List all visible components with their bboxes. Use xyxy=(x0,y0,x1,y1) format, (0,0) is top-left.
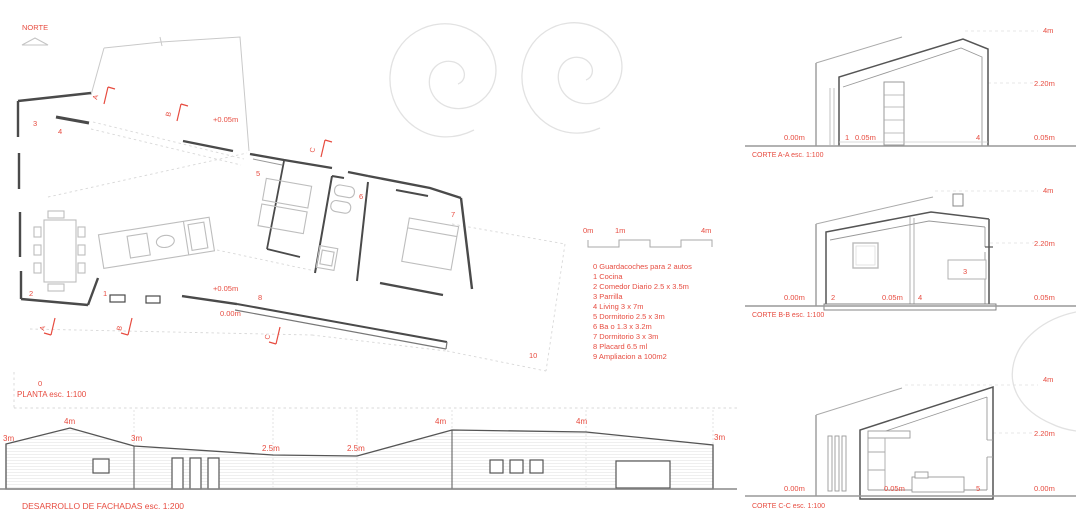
courtyard-outline xyxy=(91,37,249,151)
window xyxy=(93,459,109,473)
dim-label: 5 xyxy=(976,484,980,493)
interior-wall xyxy=(910,217,914,305)
wardrobe xyxy=(884,82,904,145)
door-lines xyxy=(830,88,834,145)
level-label: +0.05m xyxy=(213,115,238,124)
drawing-canvas: NORTE xyxy=(0,0,1076,519)
room-number: 10 xyxy=(529,351,537,360)
wall-segment xyxy=(56,117,89,123)
dim-label: 0.00m xyxy=(784,293,805,302)
dim-label: 4 xyxy=(918,293,922,302)
room-number: 5 xyxy=(256,169,260,178)
dim-label: 1 xyxy=(845,133,849,142)
facade-elevation: 3m 4m 3m 2.5m 2.5m 4m 4m 3m DESARROLLO D… xyxy=(0,410,737,511)
section-title: CORTE B-B esc. 1:100 xyxy=(752,312,824,319)
wall-segment xyxy=(182,296,237,304)
driveway-dash xyxy=(93,122,244,159)
north-arrow-icon xyxy=(22,38,48,45)
dim-label: 0.05m xyxy=(855,133,876,142)
dim-label: 2.20m xyxy=(1034,239,1055,248)
marker-letter-a: A xyxy=(92,94,100,101)
facade-profile xyxy=(6,428,713,489)
sightline-dash xyxy=(48,153,247,197)
room-number: 6 xyxy=(359,192,363,201)
room-number: 8 xyxy=(258,293,262,302)
height-label: 4m xyxy=(64,417,75,426)
pillow xyxy=(915,472,928,478)
wall-segment xyxy=(183,141,368,176)
dim-label: 0.05m xyxy=(1034,293,1055,302)
height-label: 3m xyxy=(714,433,725,442)
marker-letter-a: A xyxy=(39,325,47,332)
plan-walls xyxy=(18,93,472,349)
ref-dash xyxy=(935,191,1038,243)
window xyxy=(510,460,523,473)
wall-segment xyxy=(396,190,428,196)
door xyxy=(190,458,201,489)
sightline-dash xyxy=(217,250,315,271)
garage-door xyxy=(616,461,670,488)
courtyard-edge xyxy=(104,37,249,151)
legend-item: 3 Parrilla xyxy=(593,292,623,301)
section-b-labels: 4m 2.20m 0.00m 2 0.05m 4 3 0.05m CORTE B… xyxy=(752,186,1055,319)
courtyard-edge xyxy=(91,48,104,95)
scale-label-end: 4m xyxy=(701,226,711,235)
inner-roof-line xyxy=(843,48,982,146)
tree-spirals xyxy=(390,23,1076,431)
dining-table xyxy=(34,211,85,291)
bed xyxy=(912,477,964,492)
section-marker-c-top xyxy=(321,140,332,157)
dim-label: 2.20m xyxy=(1034,429,1055,438)
dim-label: 0.05m xyxy=(882,293,903,302)
ref-dash xyxy=(965,31,1038,83)
tree-spiral-icon xyxy=(522,23,622,133)
bedroom5-beds xyxy=(258,178,312,233)
scale-bar: 0m 1m 4m xyxy=(583,226,712,247)
elevation-title: DESARROLLO DE FACHADAS esc. 1:200 xyxy=(22,501,184,511)
scale-label-start: 0m xyxy=(583,226,593,235)
legend-item: 0 Guardacoches para 2 autos xyxy=(593,262,692,271)
dim-label: 3 xyxy=(963,267,967,276)
legend-item: 8 Placard 6.5 ml xyxy=(593,342,648,351)
legend-item: 5 Dormitorio 2.5 x 3m xyxy=(593,312,665,321)
wall-segment xyxy=(18,93,91,101)
wall-segment xyxy=(380,283,443,295)
back-roof-edge xyxy=(816,388,902,415)
dim-label: 4m xyxy=(1043,375,1053,384)
height-label: 2.5m xyxy=(262,444,280,453)
ampliacion-dash xyxy=(452,224,565,244)
section-marker-a-top xyxy=(104,87,115,104)
wall-segment xyxy=(267,161,300,257)
marker-letter-c: C xyxy=(309,147,317,154)
legend-item: 1 Cocina xyxy=(593,272,623,281)
dim-label: 0.05m xyxy=(1034,133,1055,142)
door-stub xyxy=(146,296,160,303)
wall-segment xyxy=(368,176,472,289)
scale-label-mid: 1m xyxy=(615,226,625,235)
door xyxy=(172,458,183,489)
section-marker-b-top xyxy=(177,104,188,121)
door-stubs xyxy=(110,295,160,303)
legend-item: 6 Ba o 1.3 x 3.2m xyxy=(593,322,652,331)
louver xyxy=(842,436,846,491)
window xyxy=(490,460,503,473)
legend: 0 Guardacoches para 2 autos 1 Cocina 2 C… xyxy=(593,262,692,361)
dim-label: 2.20m xyxy=(1034,79,1055,88)
bedroom7-bed xyxy=(402,218,459,270)
ampliacion-dash xyxy=(546,244,565,371)
legend-item: 7 Dormitorio 3 x 3m xyxy=(593,332,658,341)
dim-label: 0.00m xyxy=(1034,484,1055,493)
back-roof-edge xyxy=(816,37,902,63)
front-outline xyxy=(826,212,989,306)
legend-item: 9 Ampliacion a 100m2 xyxy=(593,352,667,361)
section-title: CORTE A-A esc. 1:100 xyxy=(752,152,824,159)
architectural-sheet: NORTE xyxy=(0,0,1076,519)
plan-title: PLANTA esc. 1:100 xyxy=(17,390,87,399)
dim-label: 0.05m xyxy=(884,484,905,493)
dim-label: 4m xyxy=(1043,26,1053,35)
dim-label: 0.00m xyxy=(784,484,805,493)
height-label: 3m xyxy=(131,434,142,443)
legend-item: 4 Living 3 x 7m xyxy=(593,302,643,311)
north-indicator: NORTE xyxy=(22,23,48,45)
door-stub xyxy=(110,295,125,302)
window-inner xyxy=(856,246,875,265)
bath-cabinet xyxy=(316,246,338,271)
height-label: 2.5m xyxy=(347,444,365,453)
closet-shelf xyxy=(868,431,910,438)
dim-label: 4m xyxy=(1043,186,1053,195)
front-outline xyxy=(839,39,988,146)
section-title: CORTE C-C esc. 1:100 xyxy=(752,503,825,510)
floor-slab xyxy=(824,304,996,310)
legend-item: 2 Comedor Diario 2.5 x 3.5m xyxy=(593,282,689,291)
dim-label: 4 xyxy=(976,133,980,142)
marker-letter-b: B xyxy=(116,325,124,332)
level-label: +0.05m xyxy=(213,284,238,293)
dim-label: 0.00m xyxy=(784,133,805,142)
plan-furniture xyxy=(34,178,459,291)
section-c: 4m 2.20m 0.00m 0.05m 5 0.00m CORTE C-C e… xyxy=(745,375,1076,510)
wall-segment xyxy=(18,101,21,299)
louver xyxy=(828,436,832,491)
marker-letter-b: B xyxy=(165,111,173,118)
tree-arc-icon xyxy=(1012,312,1076,431)
room-number: 0 xyxy=(38,379,42,388)
marker-letter-c: C xyxy=(264,334,272,341)
section-a-labels: 4m 2.20m 0.00m 1 0.05m 4 0.05m CORTE A-A… xyxy=(752,26,1055,159)
room-number: 3 xyxy=(33,119,37,128)
wardrobe-shelves xyxy=(884,95,904,133)
window xyxy=(530,460,543,473)
door xyxy=(208,458,219,489)
porch-wall-inner xyxy=(235,310,447,349)
bath-fixtures xyxy=(330,184,355,214)
louver xyxy=(835,436,839,491)
louvers xyxy=(828,436,846,491)
scale-bar-shape xyxy=(588,240,712,247)
back-roof-edge xyxy=(816,197,933,224)
height-label: 3m xyxy=(3,434,14,443)
north-label: NORTE xyxy=(22,23,48,32)
room-number: 4 xyxy=(58,127,62,136)
chimney xyxy=(953,194,963,206)
level-label: 0.00m xyxy=(220,309,241,318)
garage-dash xyxy=(30,329,312,335)
dim-label: 2 xyxy=(831,293,835,302)
kitchen-island xyxy=(98,217,214,268)
height-label: 4m xyxy=(435,417,446,426)
room-number: 2 xyxy=(29,289,33,298)
window xyxy=(853,243,878,268)
tree-spiral-icon xyxy=(390,24,496,137)
section-b: 4m 2.20m 0.00m 2 0.05m 4 3 0.05m CORTE B… xyxy=(745,186,1076,319)
room-number: 7 xyxy=(451,210,455,219)
height-label: 4m xyxy=(576,417,587,426)
section-a: 4m 2.20m 0.00m 1 0.05m 4 0.05m CORTE A-A… xyxy=(745,26,1076,159)
room-number: 1 xyxy=(103,289,107,298)
